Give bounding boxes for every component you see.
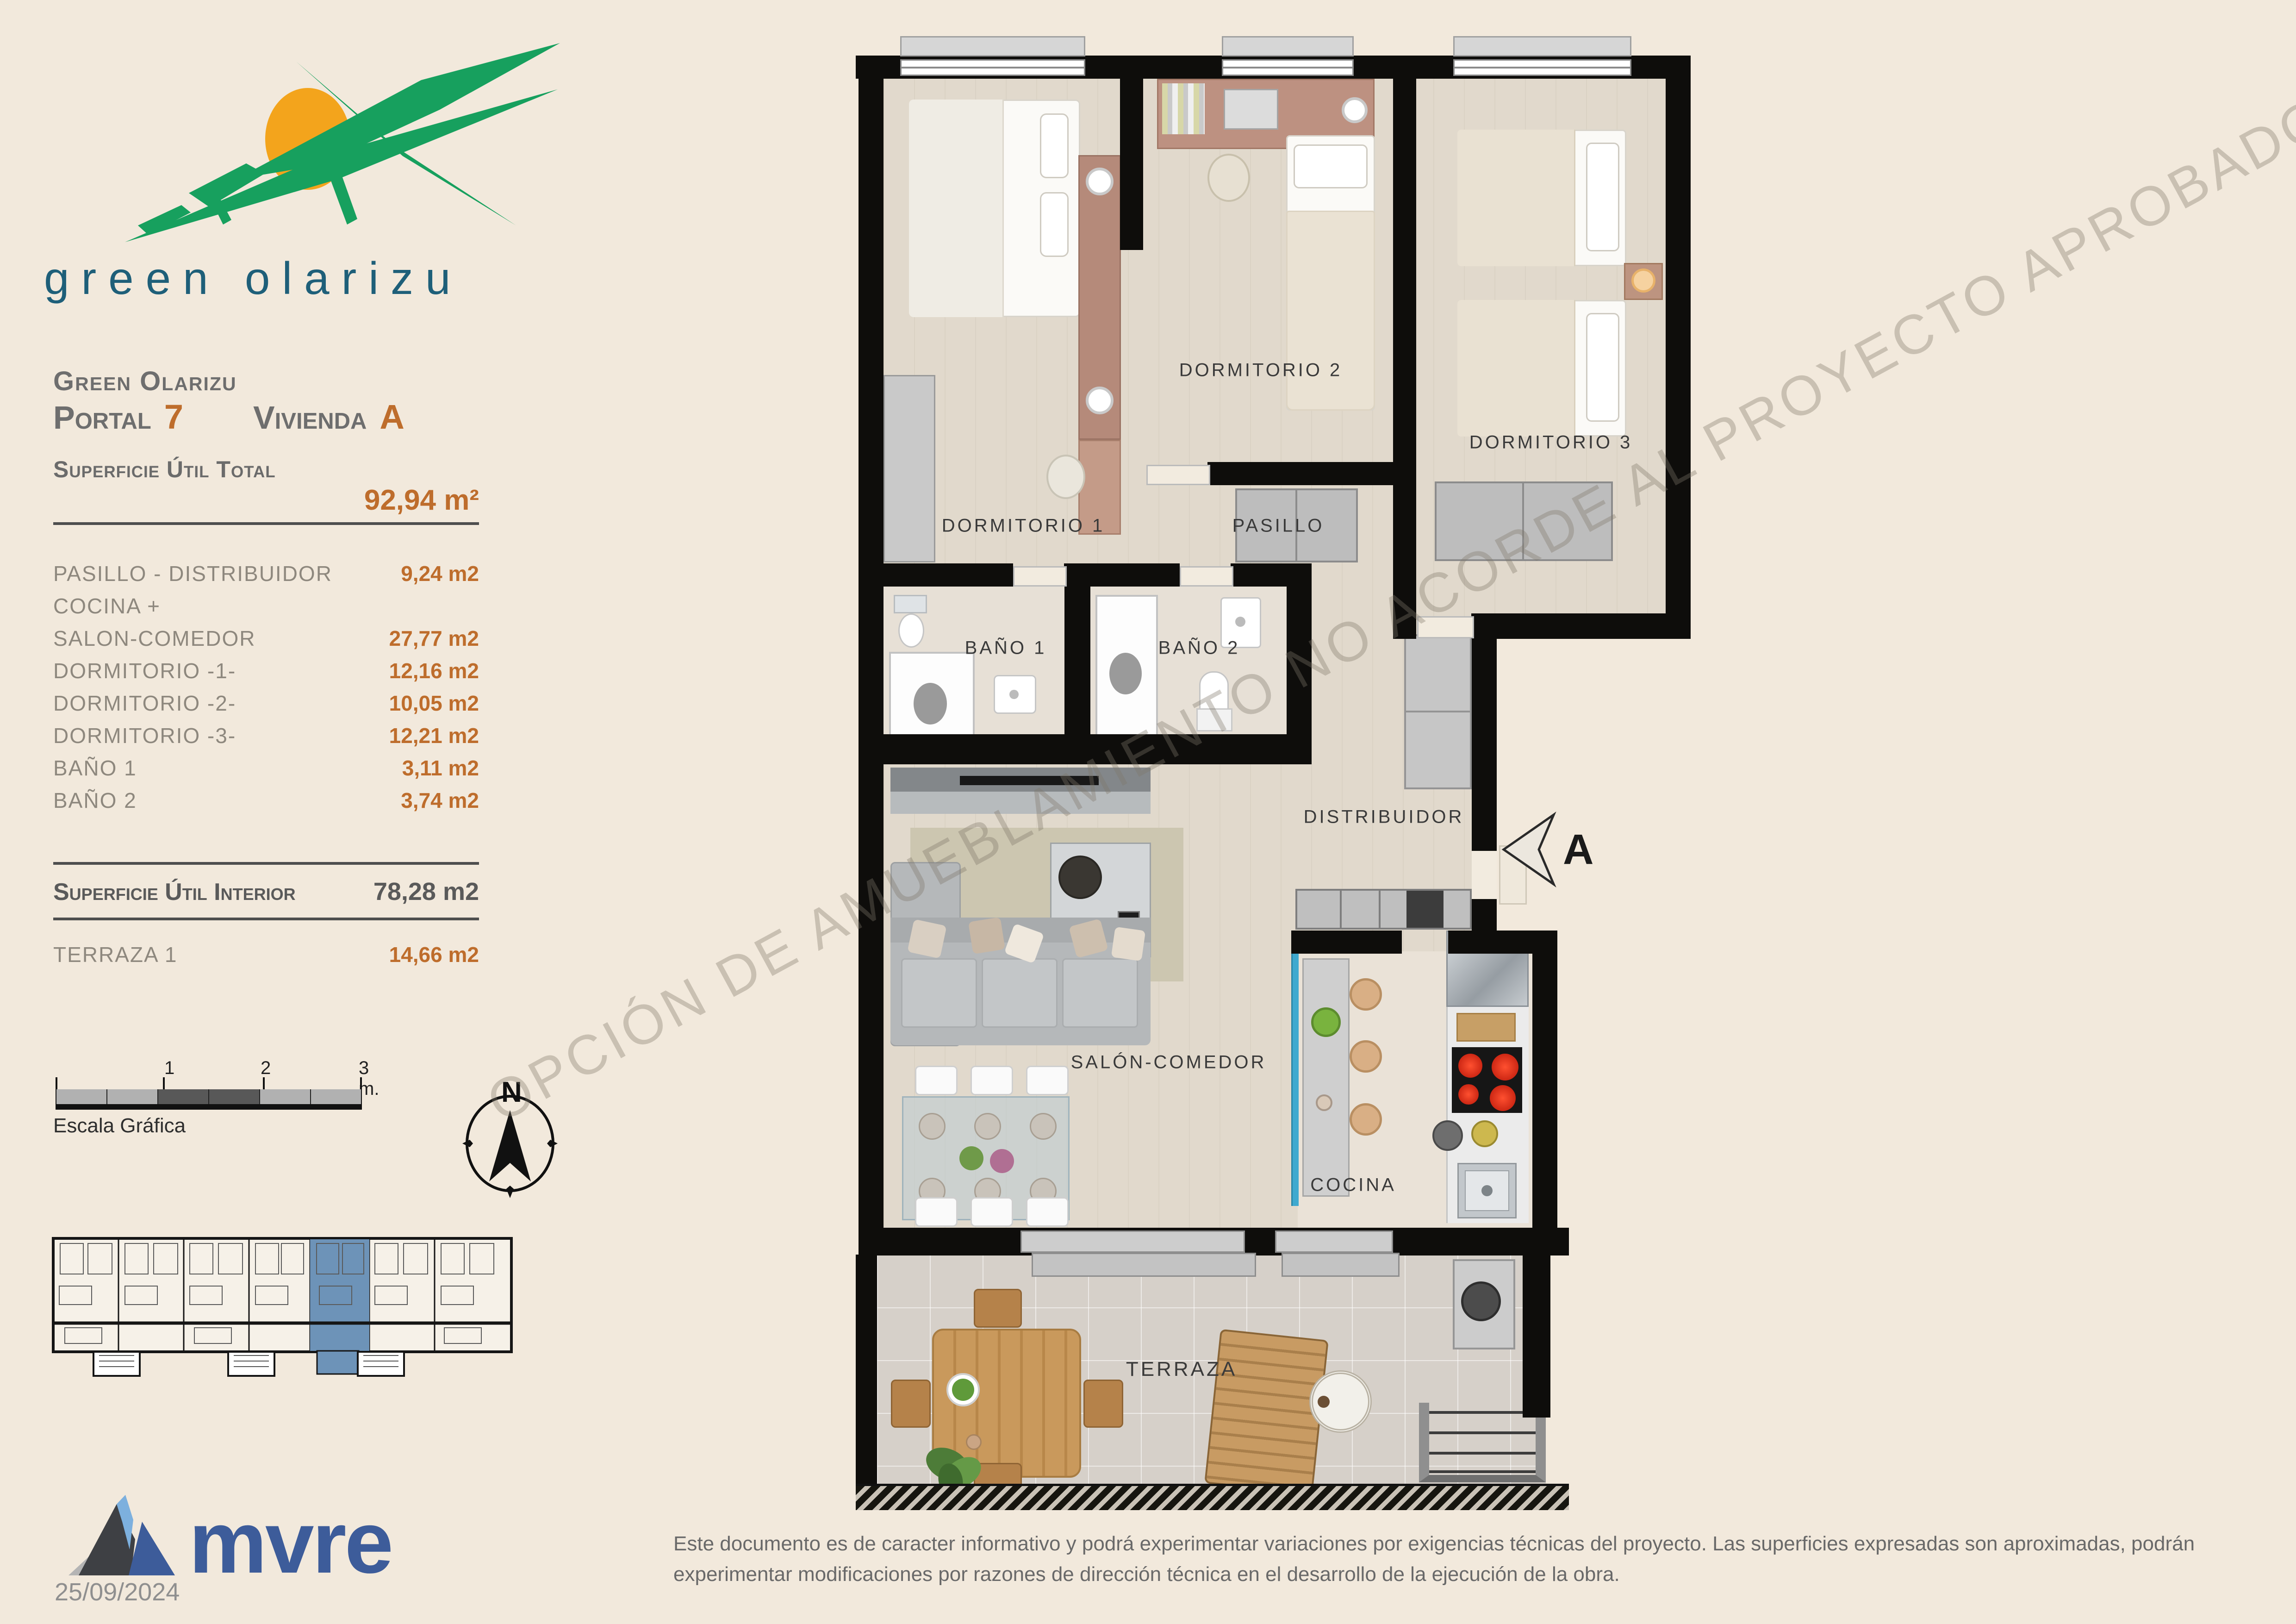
rack-bar [1429, 1411, 1536, 1414]
scale-tick-label-1: 1 [164, 1058, 174, 1079]
row-value: 27,77 m2 [389, 626, 479, 651]
terrace-row: TERRAZA 1 14,66 m2 [53, 942, 479, 967]
corner-unit [884, 375, 935, 562]
wall [1120, 79, 1143, 250]
document-date: 25/09/2024 [55, 1578, 180, 1606]
speaker-disc [1086, 387, 1114, 414]
bed-pillow [1040, 192, 1069, 257]
table-row: BAÑO 23,74 m2 [53, 788, 479, 820]
desk-chair [1207, 154, 1250, 202]
room-door [1417, 616, 1474, 638]
outdoor-chair [891, 1380, 931, 1428]
table-row: DORMITORIO -2-10,05 m2 [53, 691, 479, 723]
basin-drain [1235, 617, 1245, 627]
row-value: 10,05 m2 [389, 691, 479, 716]
row-value: 3,74 m2 [401, 788, 479, 813]
scale-tick-label-3: 3 m. [359, 1058, 386, 1099]
portal-label: Portal [53, 399, 151, 436]
section-arrow-icon [1504, 815, 1554, 884]
rack-bar [1429, 1452, 1536, 1455]
room-label-dormitorio2: DORMITORIO 2 [1179, 360, 1343, 381]
vivienda-label: Vivienda [253, 399, 367, 436]
bar-stool [1350, 1103, 1382, 1136]
bar-stool [1350, 978, 1382, 1011]
room-label-terraza: TERRAZA [1126, 1358, 1237, 1381]
place-setting [1030, 1113, 1057, 1140]
tv-unit-front [890, 792, 1151, 814]
terrace-door [1275, 1230, 1393, 1279]
room-label-pasillo: PASILLO [1232, 516, 1325, 537]
row-value: 9,24 m2 [401, 561, 479, 586]
interior-surface-row: Superficie Útil Interior 78,28 m2 [53, 877, 479, 906]
wall [1393, 613, 1416, 639]
bed-pillow [1294, 144, 1368, 188]
terrace-label: TERRAZA 1 [53, 942, 178, 967]
table-row: BAÑO 13,11 m2 [53, 756, 479, 788]
rack-bar [1429, 1431, 1536, 1434]
throw-pillow [968, 917, 1005, 954]
burner [1458, 1054, 1482, 1078]
wall [859, 56, 884, 1255]
centerpiece-flowers [990, 1149, 1014, 1173]
scale-tick-label-2: 2 [261, 1058, 271, 1079]
book-row [1162, 83, 1205, 134]
wall [1393, 79, 1416, 613]
toilet-tank [1196, 708, 1232, 731]
wall [856, 1255, 877, 1507]
room-label-dormitorio1: DORMITORIO 1 [942, 516, 1105, 537]
hall-closet [1295, 889, 1472, 930]
green-olarizu-logo-icon [97, 25, 560, 248]
row-label: BAÑO 1 [53, 756, 137, 781]
basin-drain [1009, 690, 1019, 699]
kitchen-island [1302, 958, 1350, 1197]
surface-table: PASILLO - DISTRIBUIDOR9,24 m2 COCINA + S… [53, 561, 479, 820]
wall [1523, 1255, 1550, 1418]
closet-dark-module [1406, 891, 1444, 928]
wall [1231, 563, 1312, 587]
bar-stool [1350, 1040, 1382, 1073]
window [900, 36, 1085, 79]
fruit-bowl [1471, 1120, 1498, 1147]
outdoor-cup [966, 1434, 982, 1450]
speaker-disc [1342, 97, 1368, 123]
toilet-bowl [898, 613, 924, 648]
graphic-scale: 1 2 3 m. Escala Gráfica [53, 1058, 386, 1137]
row-label: DORMITORIO -3- [53, 723, 236, 748]
row-value: 12,16 m2 [389, 658, 479, 683]
closet-divider [1340, 889, 1342, 930]
dining-chair [915, 1197, 958, 1227]
dining-chair [971, 1066, 1013, 1095]
row-value: 3,11 m2 [402, 756, 479, 781]
sliding-door [1013, 566, 1067, 587]
wall [884, 563, 1013, 587]
wall [1472, 637, 1497, 852]
laptop [1224, 89, 1278, 130]
place-setting [974, 1113, 1001, 1140]
wall [1471, 613, 1691, 639]
brand-logo [97, 25, 560, 248]
room-label-distribuidor: DISTRIBUIDOR [1304, 807, 1464, 828]
row-label: BAÑO 2 [53, 788, 137, 813]
coffee-cup [1316, 1094, 1332, 1111]
tv-screen [960, 776, 1099, 785]
wall [1291, 931, 1402, 954]
closet-divider [1379, 889, 1381, 930]
wall [1532, 931, 1557, 1231]
centerpiece-flowers [959, 1146, 983, 1170]
faucet [1481, 1185, 1493, 1196]
disclaimer-text: Este documento es de caracter informativ… [673, 1529, 2279, 1590]
table-row: DORMITORIO -1-12,16 m2 [53, 658, 479, 691]
washer-door [1461, 1281, 1501, 1321]
brand-logo-text: green olarizu [44, 252, 463, 305]
svg-text:A: A [1563, 826, 1593, 873]
bed-blanket [1457, 300, 1575, 437]
bed-pillow [1586, 143, 1619, 251]
scale-label: Escala Gráfica [53, 1114, 186, 1137]
toilet [894, 595, 927, 613]
surface-total-label: Superficie Útil Total [53, 456, 276, 483]
entrance-door [1472, 851, 1497, 899]
sliding-door [1180, 566, 1233, 587]
shower-drain [914, 683, 947, 725]
wall [1207, 462, 1401, 485]
room-label-dormitorio3: DORMITORIO 3 [1469, 432, 1633, 453]
row-label: PASILLO - DISTRIBUIDOR [53, 561, 332, 586]
mvre-logo: mvre [65, 1493, 574, 1586]
room-label-cocina: COCINA [1310, 1175, 1396, 1196]
portal-vivienda-line: Portal 7 Vivienda A [53, 397, 404, 437]
table-row: COCINA + [53, 593, 479, 626]
north-label: N [501, 1076, 522, 1108]
outdoor-chair [974, 1289, 1022, 1328]
wardrobe-divider [1522, 481, 1524, 561]
row-label: DORMITORIO -2- [53, 691, 236, 716]
scale-baseline [56, 1104, 362, 1110]
place-setting [919, 1113, 946, 1140]
sofa-cushion [901, 958, 977, 1028]
room-label-salon: SALÓN-COMEDOR [1071, 1052, 1267, 1073]
vivienda-letter: A [380, 397, 404, 437]
table-row: DORMITORIO -3-12,21 m2 [53, 723, 479, 756]
shower-drain [1109, 653, 1142, 694]
cutting-board [1456, 1013, 1516, 1042]
burner [1490, 1085, 1516, 1111]
interior-value: 78,28 m2 [373, 877, 479, 906]
dining-chair [971, 1197, 1013, 1227]
bed-blanket [1457, 130, 1575, 266]
row-value: 12,21 m2 [389, 723, 479, 748]
bed-pillow [1586, 313, 1619, 422]
terrace-door [1020, 1230, 1245, 1279]
table-row: PASILLO - DISTRIBUIDOR9,24 m2 [53, 561, 479, 593]
terrace-value: 14,66 m2 [389, 942, 479, 967]
key-plan [51, 1236, 514, 1396]
north-arrow-icon [489, 1110, 531, 1181]
divider-line [53, 862, 479, 865]
dining-chair [1026, 1066, 1069, 1095]
table-lamp [1631, 269, 1655, 293]
dining-chair [1026, 1197, 1069, 1227]
north-compass: N [456, 1074, 567, 1213]
terrace-parapet [856, 1484, 1569, 1510]
row-label: SALON-COMEDOR [53, 626, 255, 651]
glass-partition [1291, 954, 1299, 1206]
row-label: COCINA + [53, 593, 161, 618]
divider-line [53, 918, 479, 920]
rack-bar [1429, 1470, 1536, 1473]
sofa-cushion [982, 958, 1058, 1028]
table-row: SALON-COMEDOR27,77 m2 [53, 626, 479, 658]
wall [1666, 56, 1691, 639]
sofa-cushion [1062, 958, 1138, 1028]
interior-label: Superficie Útil Interior [53, 878, 296, 906]
burner [1458, 1084, 1479, 1105]
desk-chair [1046, 455, 1085, 499]
burner [1492, 1054, 1518, 1081]
decor-tray [1058, 856, 1102, 899]
window [1453, 36, 1631, 79]
room-label-bano1: BAÑO 1 [965, 638, 1047, 659]
floor-plan: DORMITORIO 1 PASILLO DORMITORIO 2 DORMIT… [856, 56, 1694, 1509]
wardrobe-divider [1404, 711, 1472, 712]
wall [884, 734, 1312, 764]
coffee-cup [1318, 1396, 1330, 1408]
outdoor-chair [1083, 1380, 1123, 1428]
bed-pillow [1040, 113, 1069, 178]
divider-line [53, 522, 479, 525]
bed-blanket [909, 100, 1004, 317]
window [1222, 36, 1354, 79]
scale-bar-segments [56, 1089, 361, 1104]
outdoor-plate-food [952, 1379, 974, 1401]
company-name: mvre [189, 1493, 392, 1586]
portal-number: 7 [164, 397, 183, 437]
speaker-disc [1086, 168, 1114, 195]
small-appliance [1432, 1120, 1463, 1151]
surface-total-value: 92,94 m² [53, 484, 479, 517]
section-marker: A [1499, 810, 1610, 889]
throw-pillow [907, 919, 946, 958]
sun-lounger [1204, 1329, 1329, 1495]
room-label-bano2: BAÑO 2 [1158, 638, 1240, 659]
project-name: Green Olarizu [53, 366, 237, 397]
salad-plate [1311, 1007, 1341, 1037]
wall [1064, 563, 1180, 587]
dining-chair [915, 1066, 958, 1095]
room-door [1146, 465, 1210, 485]
throw-pillow [1111, 927, 1146, 962]
row-label: DORMITORIO -1- [53, 658, 236, 683]
